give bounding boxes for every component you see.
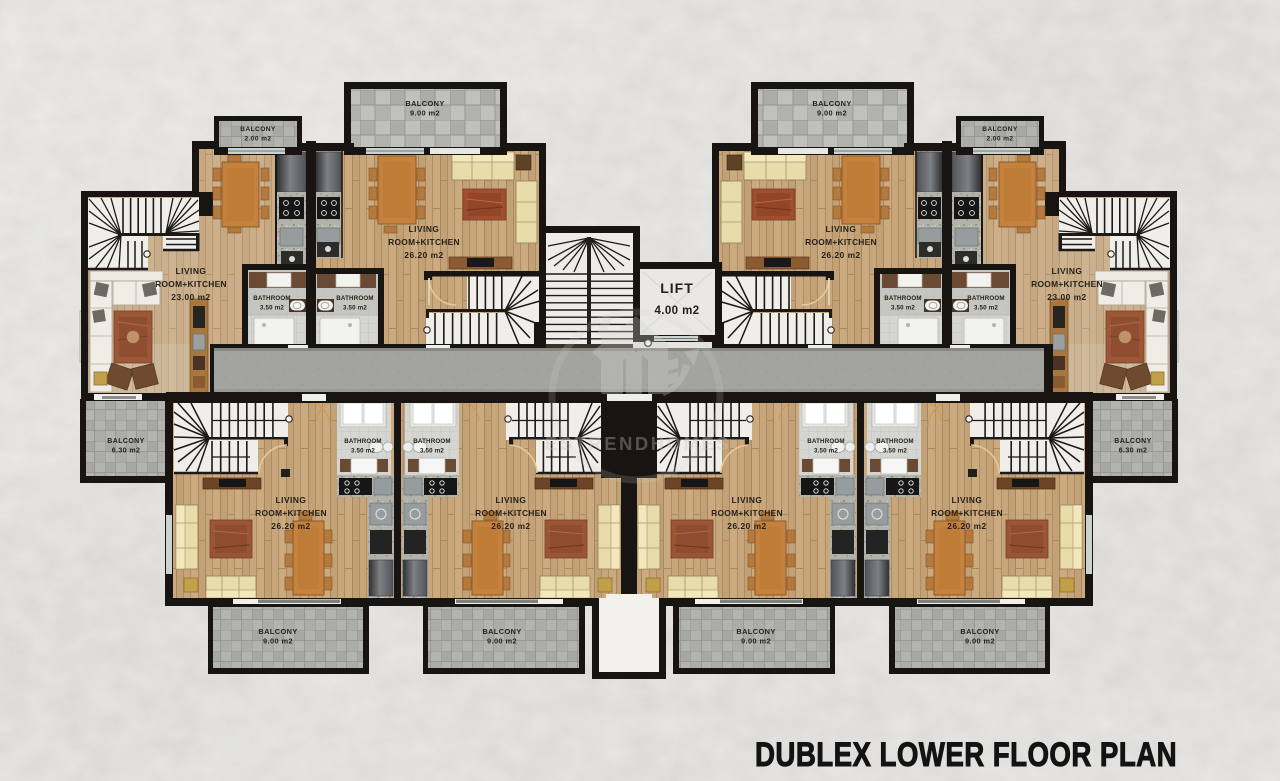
svg-text:ROOM+KITCHEN: ROOM+KITCHEN [155,279,227,289]
svg-text:ESTRENDHOMES: ESTRENDHOMES [545,433,731,454]
svg-text:ROOM+KITCHEN: ROOM+KITCHEN [931,508,1003,518]
svg-text:BALCONY: BALCONY [982,126,1018,133]
svg-text:3.50 m2: 3.50 m2 [420,448,444,455]
svg-text:26.20 m2: 26.20 m2 [821,250,860,260]
svg-text:23.00 m2: 23.00 m2 [171,292,210,302]
svg-text:26.20 m2: 26.20 m2 [947,521,986,531]
svg-text:3.50 m2: 3.50 m2 [814,448,838,455]
svg-text:BALCONY: BALCONY [482,627,521,636]
svg-text:ROOM+KITCHEN: ROOM+KITCHEN [475,508,547,518]
svg-text:ROOM+KITCHEN: ROOM+KITCHEN [255,508,327,518]
svg-text:DUBLEX LOWER FLOOR PLAN: DUBLEX LOWER FLOOR PLAN [755,736,1177,774]
svg-text:BALCONY: BALCONY [1114,438,1151,445]
svg-text:LIVING: LIVING [952,495,983,505]
svg-text:BATHROOM: BATHROOM [876,438,914,445]
svg-text:26.20 m2: 26.20 m2 [491,521,530,531]
svg-text:BALCONY: BALCONY [405,99,444,108]
svg-text:LIVING: LIVING [496,495,527,505]
svg-text:9.00 m2: 9.00 m2 [410,109,440,118]
svg-text:BATHROOM: BATHROOM [253,295,291,302]
svg-text:LIVING: LIVING [409,224,440,234]
svg-text:BATHROOM: BATHROOM [967,295,1005,302]
svg-text:3.50 m2: 3.50 m2 [260,305,284,312]
svg-text:3.50 m2: 3.50 m2 [351,448,375,455]
svg-text:2.00 m2: 2.00 m2 [987,136,1014,143]
svg-text:BATHROOM: BATHROOM [884,295,922,302]
svg-text:9.00 m2: 9.00 m2 [263,637,293,646]
svg-text:BALCONY: BALCONY [812,99,851,108]
svg-text:2.00 m2: 2.00 m2 [245,136,272,143]
svg-text:LIVING: LIVING [176,266,207,276]
svg-text:3.50 m2: 3.50 m2 [974,305,998,312]
svg-text:6.30 m2: 6.30 m2 [1119,448,1148,455]
svg-text:LIFT: LIFT [660,280,694,296]
svg-text:3.50 m2: 3.50 m2 [343,305,367,312]
svg-text:BATHROOM: BATHROOM [807,438,845,445]
svg-text:BATHROOM: BATHROOM [413,438,451,445]
svg-text:9.00 m2: 9.00 m2 [965,637,995,646]
svg-text:3.50 m2: 3.50 m2 [883,448,907,455]
svg-text:26.20 m2: 26.20 m2 [271,521,310,531]
svg-text:4.00 m2: 4.00 m2 [655,305,700,317]
svg-text:ROOM+KITCHEN: ROOM+KITCHEN [1031,279,1103,289]
svg-text:ROOM+KITCHEN: ROOM+KITCHEN [711,508,783,518]
svg-text:3.50 m2: 3.50 m2 [891,305,915,312]
svg-text:LIVING: LIVING [1052,266,1083,276]
svg-text:6.30 m2: 6.30 m2 [112,448,141,455]
svg-text:9.00 m2: 9.00 m2 [741,637,771,646]
svg-text:BALCONY: BALCONY [240,126,276,133]
svg-text:LIVING: LIVING [732,495,763,505]
svg-text:BALCONY: BALCONY [960,627,999,636]
svg-text:BALCONY: BALCONY [736,627,775,636]
svg-text:BATHROOM: BATHROOM [336,295,374,302]
svg-text:BALCONY: BALCONY [107,438,144,445]
svg-text:BALCONY: BALCONY [258,627,297,636]
svg-text:ROOM+KITCHEN: ROOM+KITCHEN [388,237,460,247]
svg-text:26.20 m2: 26.20 m2 [404,250,443,260]
svg-text:ROOM+KITCHEN: ROOM+KITCHEN [805,237,877,247]
svg-text:LIVING: LIVING [826,224,857,234]
svg-text:BATHROOM: BATHROOM [344,438,382,445]
svg-text:23.00 m2: 23.00 m2 [1047,292,1086,302]
svg-text:LIVING: LIVING [276,495,307,505]
svg-text:9.00 m2: 9.00 m2 [817,109,847,118]
svg-text:9.00 m2: 9.00 m2 [487,637,517,646]
svg-text:26.20 m2: 26.20 m2 [727,521,766,531]
